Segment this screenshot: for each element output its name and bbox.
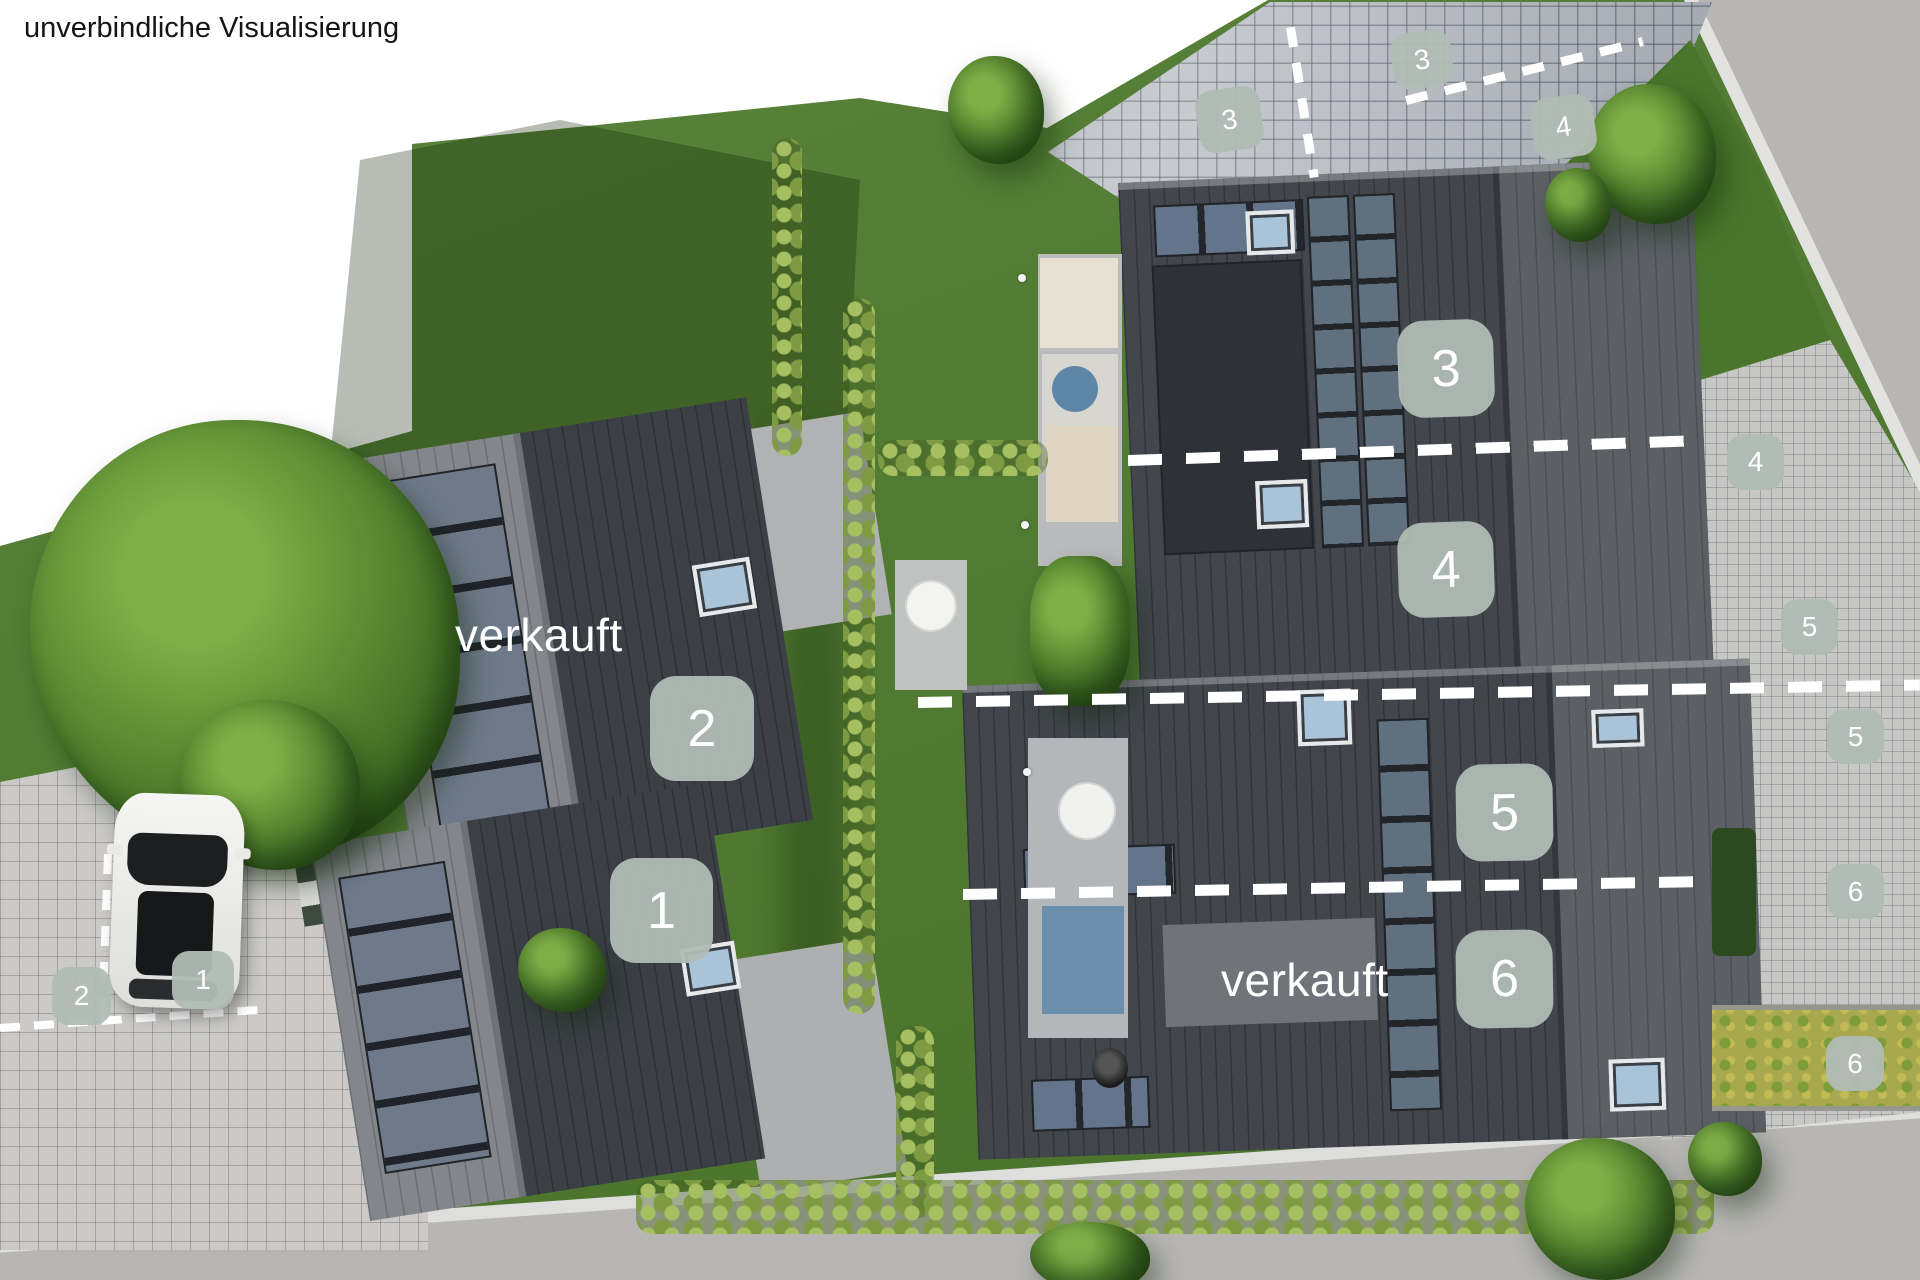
parking-badge-5b[interactable]: 5 — [1827, 709, 1884, 764]
garden-bushes-middle — [1030, 556, 1130, 706]
unit-badge-5[interactable]: 5 — [1455, 763, 1554, 862]
building-5-6-east-skylight-top — [1591, 708, 1644, 748]
parasol — [1058, 782, 1116, 840]
garden-lamp-1 — [1018, 274, 1026, 282]
unit-badge-1[interactable]: 1 — [610, 858, 713, 963]
garden-lamp-2 — [1021, 521, 1029, 529]
building-5-6-solar-row-b — [1031, 1076, 1151, 1132]
parking-badge-3a[interactable]: 3 — [1193, 84, 1266, 155]
car-windshield — [127, 832, 229, 887]
parking-badge-4b[interactable]: 4 — [1727, 434, 1784, 490]
parking-badge-3b[interactable]: 3 — [1388, 27, 1455, 92]
parking-badge-4a[interactable]: 4 — [1528, 92, 1599, 162]
parking-badge-6a[interactable]: 6 — [1827, 864, 1884, 919]
car-mirror-right — [235, 848, 251, 860]
garden-lamp-3 — [1023, 768, 1031, 776]
parasol-west — [905, 580, 957, 632]
parking-badge-1[interactable]: 1 — [172, 951, 234, 1009]
bush-northeast — [1545, 168, 1611, 242]
unit-3-skylight — [1245, 209, 1295, 255]
hedge-row-cross — [878, 440, 1048, 476]
unit-badge-3[interactable]: 3 — [1396, 318, 1495, 418]
hedge-block-east — [1712, 828, 1756, 956]
unit-badge-4[interactable]: 4 — [1396, 520, 1495, 618]
bush-garden-house1 — [518, 928, 606, 1012]
sold-label-house-6: verkauft — [1221, 953, 1389, 1007]
unit-badge-6[interactable]: 6 — [1455, 929, 1554, 1029]
parking-badge-2[interactable]: 2 — [52, 967, 111, 1025]
hedge-row-central — [843, 298, 875, 1014]
round-rug — [1052, 366, 1098, 412]
house-2-skylight — [692, 557, 757, 617]
parking-badge-5a[interactable]: 5 — [1781, 599, 1838, 655]
sold-label-house-2: verkauft — [455, 608, 623, 662]
disclaimer-title: unverbindliche Visualisierung — [24, 12, 399, 45]
car-mirror-left — [107, 844, 123, 856]
terrace-strip-north — [1038, 254, 1122, 566]
hedge-row-northwest — [772, 138, 802, 456]
grill — [1092, 1048, 1128, 1088]
unit-badge-2[interactable]: 2 — [650, 676, 754, 781]
terrace-rug — [1042, 906, 1124, 1014]
lounger-awning — [1046, 426, 1118, 522]
site-plan-visualization: 1 2 3 4 5 6 3 3 4 4 5 5 6 6 1 2 verkauft… — [0, 0, 1920, 1280]
bush-southeast — [1688, 1122, 1762, 1196]
pergola-awning — [1040, 258, 1118, 348]
flower-garden-strip — [1712, 1005, 1920, 1111]
building-5-6-east-skylight-bottom — [1608, 1058, 1666, 1112]
unit-4-skylight — [1255, 479, 1309, 529]
bush-north — [948, 56, 1044, 164]
parking-badge-6b[interactable]: 6 — [1826, 1036, 1884, 1091]
building-3-4-east-slope — [1498, 158, 1714, 671]
